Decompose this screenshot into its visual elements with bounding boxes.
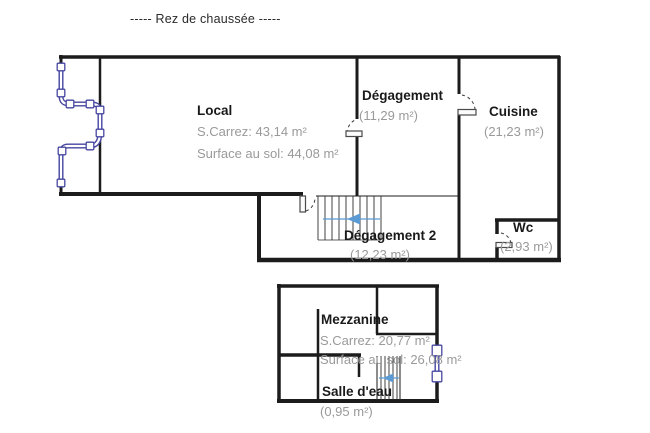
door-local-degagement <box>346 120 362 137</box>
door-degagement-cuisine <box>458 95 476 115</box>
door-leaf <box>300 196 306 212</box>
floor-plan-drawing <box>0 0 650 433</box>
upper-floor-walls <box>59 55 561 261</box>
floor-plan: ----- Rez de chaussée ----- Local S.Carr… <box>0 0 650 433</box>
door-leaf <box>458 110 476 116</box>
window-symbol-right <box>432 345 442 382</box>
window-symbol-left-bay <box>57 63 104 187</box>
door-leaf <box>496 243 512 248</box>
door-wc <box>496 233 512 248</box>
arrow-head-icon <box>383 374 393 383</box>
window-nodes <box>57 63 104 187</box>
door-degagement2 <box>300 196 315 212</box>
arrow-head-icon <box>347 214 360 225</box>
lower-floor-walls <box>277 284 439 402</box>
door-leaf <box>346 131 362 137</box>
